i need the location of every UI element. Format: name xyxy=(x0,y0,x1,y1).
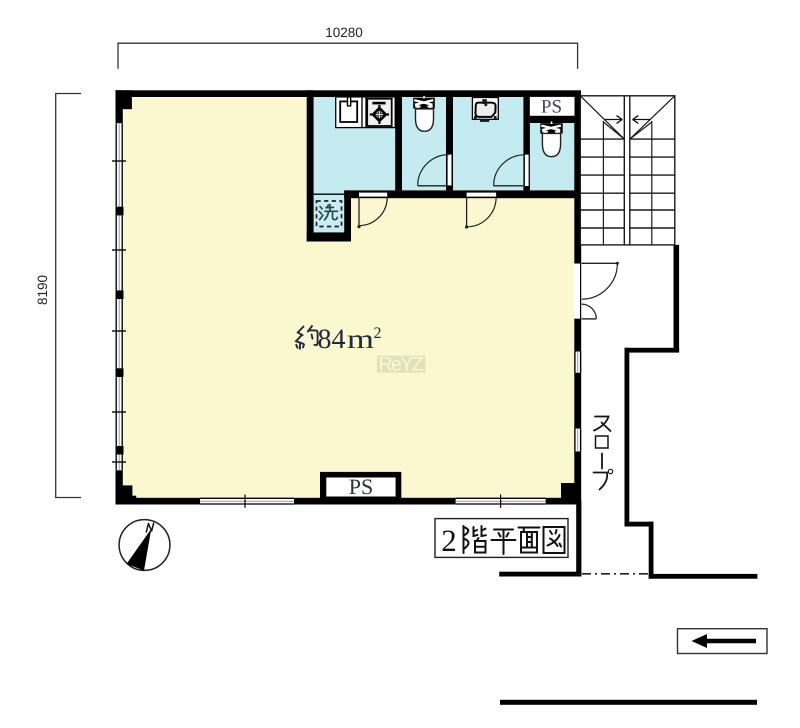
svg-text:2: 2 xyxy=(441,523,457,558)
svg-text:2: 2 xyxy=(374,325,382,342)
svg-text:10280: 10280 xyxy=(325,25,363,40)
svg-text:ReYZ: ReYZ xyxy=(379,354,424,376)
svg-text:8190: 8190 xyxy=(35,275,50,305)
svg-text:84: 84 xyxy=(318,324,346,355)
svg-text:m: m xyxy=(347,324,374,354)
svg-text:PS: PS xyxy=(541,97,562,118)
svg-text:PS: PS xyxy=(349,474,373,499)
